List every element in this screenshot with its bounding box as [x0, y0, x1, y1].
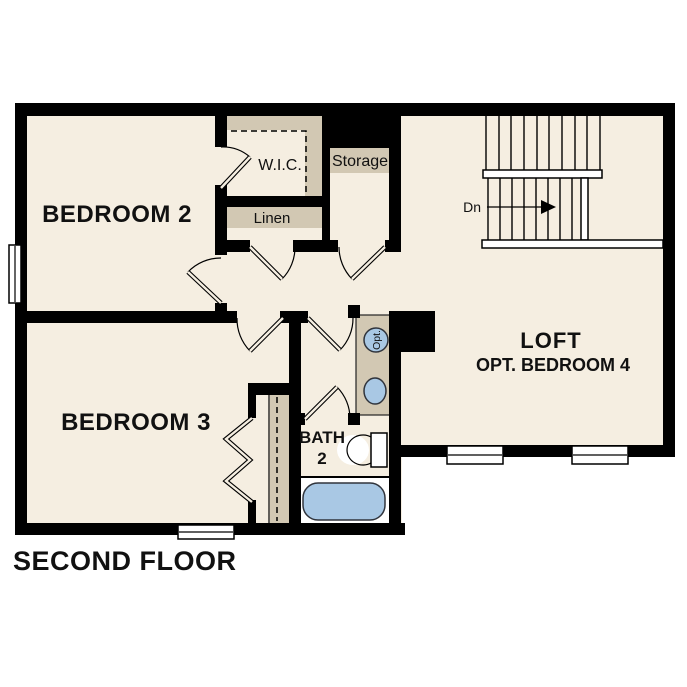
floor-plan-drawing: Dn	[0, 0, 687, 687]
wic-shelf-right	[305, 116, 322, 197]
wall-storage-right	[389, 103, 401, 250]
stair-bottom-rail	[482, 240, 663, 248]
tub-deck-line	[301, 476, 389, 478]
stair-newel	[581, 178, 588, 240]
bedroom3-closet-shelf	[270, 395, 289, 523]
wall-hall-top-a	[227, 240, 250, 252]
wall-right	[663, 103, 675, 457]
stair-mid-rail	[483, 170, 602, 178]
wall-bedroom2-right-upper	[215, 103, 227, 147]
window-bedroom2-left	[9, 245, 21, 303]
wall-storage-left	[322, 148, 330, 252]
bedroom3-label: BEDROOM 3	[61, 409, 211, 436]
stair-down-label: Dn	[463, 199, 481, 215]
optional-sink-label: Opt.	[371, 330, 383, 350]
loft-label: LOFT	[520, 328, 581, 353]
wall-closet-stub-lower	[248, 500, 256, 523]
optional-sink: Opt.	[364, 328, 388, 352]
wall-wic-bottom	[215, 196, 330, 207]
bath-label-line2: 2	[317, 449, 326, 468]
wall-closet-stub-upper	[248, 395, 256, 418]
wall-hall-top-c	[385, 240, 401, 252]
linen-label: Linen	[254, 210, 291, 227]
bedroom2-label: BEDROOM 2	[42, 201, 192, 228]
storage-label: Storage	[332, 153, 388, 170]
wall-bath-right	[389, 352, 401, 535]
floor-plan-page: Dn	[0, 0, 687, 687]
window-bedroom3-bottom	[178, 525, 234, 539]
wic-label: W.I.C.	[258, 157, 302, 174]
loft-sublabel: OPT. BEDROOM 4	[476, 355, 630, 375]
window-loft-left	[447, 446, 503, 464]
window-loft-right	[572, 446, 628, 464]
wall-bedroom2-right-mid	[215, 185, 227, 255]
wall-loft-bottom	[397, 445, 675, 457]
page-title: SECOND FLOOR	[13, 546, 237, 576]
wall-bath-top-stub	[348, 305, 360, 318]
wall-bath-mid-a	[289, 413, 305, 425]
vanity-sink	[364, 378, 386, 404]
wall-closet-top	[248, 383, 301, 395]
toilet-tank	[371, 433, 387, 467]
wall-bedroom-divider	[15, 311, 237, 323]
bathtub	[303, 483, 385, 520]
bath-label-line1: BATH	[299, 428, 345, 447]
wall-hall-top-b	[293, 240, 338, 252]
wall-bath-ne-block	[389, 311, 435, 352]
